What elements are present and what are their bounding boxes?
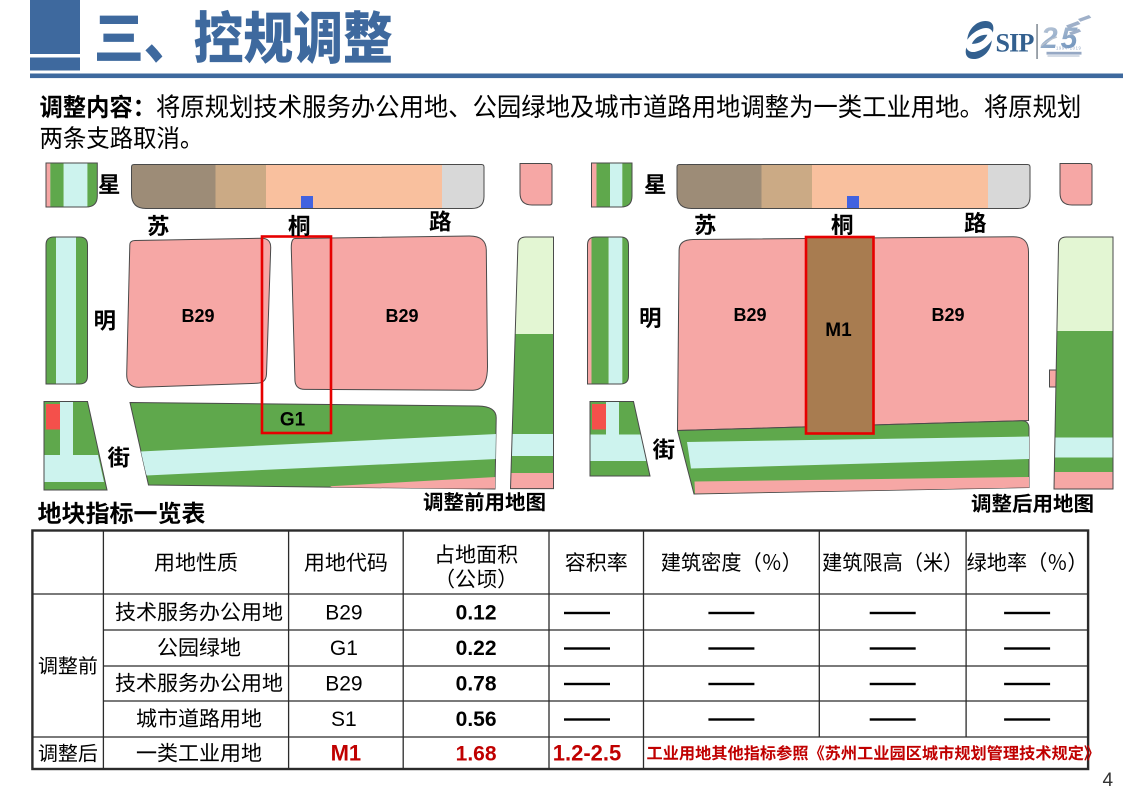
- svg-text:0.56: 0.56: [456, 708, 497, 731]
- svg-text:0.78: 0.78: [456, 673, 497, 696]
- svg-text:M1: M1: [825, 320, 852, 341]
- svg-text:SIP: SIP: [996, 28, 1035, 57]
- svg-text:S1: S1: [331, 708, 357, 731]
- svg-text:1.68: 1.68: [456, 743, 497, 766]
- svg-text:B29: B29: [385, 306, 418, 326]
- svg-text:1.2-2.5: 1.2-2.5: [553, 741, 622, 766]
- svg-text:0.12: 0.12: [456, 602, 497, 625]
- svg-text:B29: B29: [931, 305, 964, 325]
- svg-text:B29: B29: [325, 673, 362, 696]
- svg-text:1994-2019: 1994-2019: [1056, 45, 1081, 50]
- svg-text:4: 4: [1103, 770, 1114, 791]
- svg-text:B29: B29: [733, 305, 766, 325]
- svg-text:B29: B29: [181, 306, 214, 326]
- svg-text:G1: G1: [280, 410, 306, 431]
- svg-text:B29: B29: [325, 602, 362, 625]
- svg-text:0.22: 0.22: [456, 637, 497, 660]
- svg-text:M1: M1: [331, 741, 362, 766]
- svg-text:G1: G1: [330, 637, 358, 660]
